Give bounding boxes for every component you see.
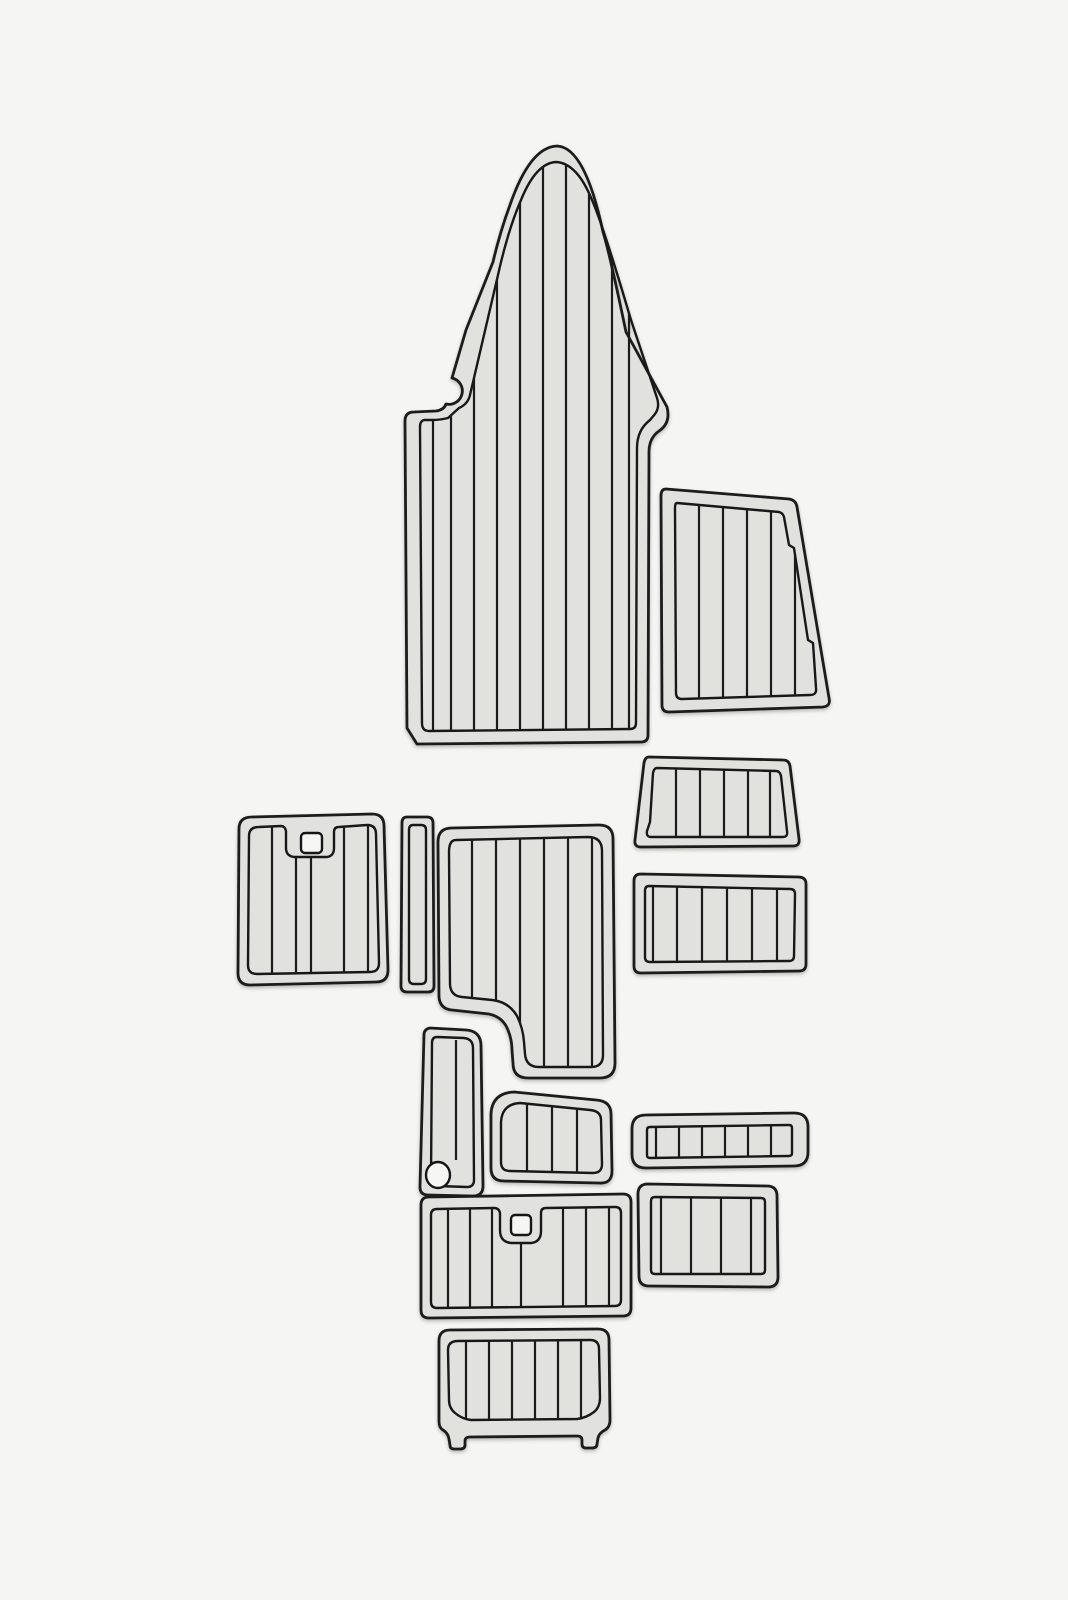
decking-pad-set-image [0, 0, 1068, 1600]
narrow-vertical-strip [401, 817, 434, 992]
side-rectangle-pad-upper [634, 870, 806, 975]
latch-cutout-hole [511, 1215, 531, 1235]
pad-outer [421, 1194, 631, 1318]
pad-outer [439, 1329, 610, 1449]
boot-shaped-pad [420, 1028, 483, 1196]
pad-outer [401, 817, 434, 992]
swim-platform-pad [439, 1329, 610, 1449]
pad-outer [632, 1113, 808, 1168]
step-tread-strip [632, 1113, 808, 1170]
notch-cutout [426, 1162, 450, 1188]
hatch-pad-with-keyhole [238, 814, 388, 985]
side-rectangle-pad-lower [638, 1184, 778, 1287]
small-trapezoid-pad [635, 755, 799, 850]
transom-pad-with-keyhole [421, 1194, 631, 1318]
pad-outer [638, 1184, 778, 1287]
small-rounded-pad [491, 1092, 612, 1183]
latch-cutout-hole [301, 833, 322, 853]
product-image-canvas [0, 0, 1068, 1600]
